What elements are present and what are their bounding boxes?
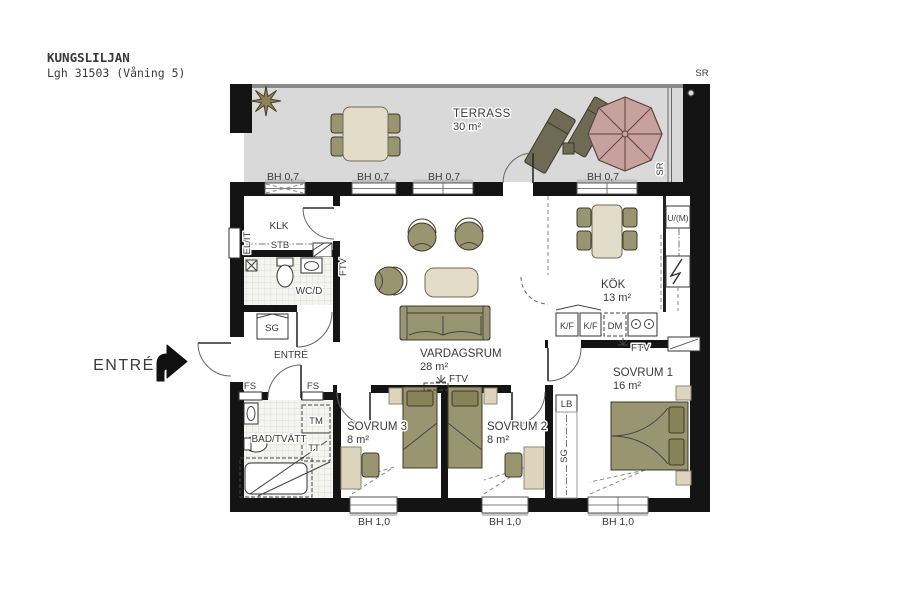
tv-outlet-label-living: FTV xyxy=(449,374,468,385)
tv-outlet-label-kitchen: FTV xyxy=(631,343,650,354)
nightstand xyxy=(676,386,691,400)
room-label-bedroom3: SOVRUM 3 xyxy=(347,421,407,433)
terrace-chair xyxy=(331,137,344,156)
living-furniture xyxy=(375,218,490,340)
entry-door xyxy=(198,343,231,376)
shelf-label: STB xyxy=(271,240,289,251)
kitchen-chair xyxy=(623,208,637,227)
entrance-arrow-icon xyxy=(157,345,187,381)
armchair xyxy=(455,218,483,250)
terrace-chair xyxy=(331,114,344,133)
terrace-name-label: TERRASS xyxy=(453,108,511,120)
sink-bath xyxy=(244,403,258,424)
vent-slot-label: FS xyxy=(307,381,319,392)
apartment-subtitle: Lgh 31503 (Våning 5) xyxy=(47,66,185,80)
wardrobe-label-shaft: SG xyxy=(559,449,570,463)
tumble-dryer-label: TT xyxy=(308,443,320,454)
entrance-marker: ENTRÉ xyxy=(93,345,187,381)
dishwasher-label: DM xyxy=(608,321,623,332)
room-area-bedroom2: 8 m² xyxy=(487,434,509,446)
tv-outlet-label-v: FTV xyxy=(338,257,349,276)
nightstand xyxy=(484,388,497,404)
terrace-chair xyxy=(387,137,400,156)
vent-box xyxy=(668,337,700,351)
kitchen-chair xyxy=(577,208,591,227)
toilet-wc xyxy=(277,258,293,287)
downpipe-label-side: SR xyxy=(655,162,666,175)
bed-single xyxy=(403,387,437,468)
kitchen-opening-arc xyxy=(521,277,548,304)
room-area-bedroom3: 8 m² xyxy=(347,434,369,446)
sink-wc xyxy=(301,258,322,273)
fridge-freezer-label: K/F xyxy=(560,321,575,331)
entrance-label: ENTRÉ xyxy=(93,355,155,374)
room-area-bedroom1: 16 m² xyxy=(613,380,641,392)
room-label-bedroom1: SOVRUM 1 xyxy=(613,367,673,379)
armchair xyxy=(408,219,436,251)
washing-machine-label: TM xyxy=(309,416,323,427)
nightstand xyxy=(389,388,402,404)
sill-label-upper: BH 0,7 xyxy=(428,171,460,183)
oven-microwave-label: U/(M) xyxy=(667,213,688,223)
terrace-wall-left xyxy=(230,84,252,133)
bed-double xyxy=(611,402,688,470)
wc-door xyxy=(297,312,332,347)
desk xyxy=(341,447,361,489)
desk-chair xyxy=(362,453,379,477)
sill-label-upper: BH 0,7 xyxy=(267,171,299,183)
sofa xyxy=(400,306,490,340)
room-label-hall: ENTRÉ xyxy=(274,348,308,361)
parasol-icon xyxy=(588,97,662,171)
room-area-kitchen: 13 m² xyxy=(603,292,631,304)
klk-door xyxy=(303,208,334,239)
vent-slot-label: FS xyxy=(244,381,256,392)
kitchen-table xyxy=(592,205,622,258)
room-label-living: VARDAGSRUM xyxy=(420,348,502,360)
terrace: TERRASS 30 m² SR SR xyxy=(230,68,710,196)
room-label-wc: WC/D xyxy=(296,286,323,297)
terrace-chair xyxy=(387,114,400,133)
project-title: KUNGSLILJAN xyxy=(47,50,130,65)
room-area-living: 28 m² xyxy=(420,361,448,373)
linen-cabinet-label: LB xyxy=(561,399,573,410)
room-label-klk: KLK xyxy=(270,221,289,232)
room-label-bath: BAD/TVÄTT xyxy=(251,433,306,445)
electrical-panel-icon xyxy=(666,256,690,287)
electrical-niche xyxy=(229,228,240,258)
desk-chair xyxy=(505,453,522,477)
wardrobe-label-hall: SG xyxy=(265,323,279,334)
vent-slot-box xyxy=(302,392,323,400)
terrace-wall-right xyxy=(683,84,710,196)
sill-label-upper: BH 0,7 xyxy=(587,171,619,183)
coffee-table xyxy=(425,268,478,297)
sill-label-lower: BH 1,0 xyxy=(602,516,634,528)
kitchen-dining-set xyxy=(577,205,637,258)
shaft-hatch-box xyxy=(313,243,332,257)
sill-label-lower: BH 1,0 xyxy=(358,516,390,528)
kitchen-chair xyxy=(577,231,591,250)
armchair xyxy=(375,267,407,295)
terrace-table xyxy=(343,107,388,161)
kitchen-chair xyxy=(623,231,637,250)
sill-label-upper: BH 0,7 xyxy=(357,171,389,183)
bedroom1-furniture xyxy=(556,386,691,498)
nightstand xyxy=(676,471,691,485)
vent-slot-box xyxy=(239,392,262,400)
downpipe-label-top: SR xyxy=(695,68,708,79)
room-label-bedroom2: SOVRUM 2 xyxy=(487,421,547,433)
lower-windows xyxy=(350,467,648,516)
bed-single xyxy=(448,387,482,468)
floor-plan-page: KUNGSLILJAN Lgh 31503 (Våning 5) xyxy=(0,0,900,600)
fridge-freezer-label: K/F xyxy=(583,321,598,331)
desk xyxy=(524,447,544,489)
terrace-railing xyxy=(230,84,710,88)
kitchen-sink-unit xyxy=(628,313,657,336)
bedroom1-door xyxy=(548,348,581,381)
north-compass-icon xyxy=(251,86,281,116)
lounger-side-table xyxy=(563,143,574,154)
room-label-kitchen: KÖK xyxy=(601,279,626,291)
floor-plan-svg: KUNGSLILJAN Lgh 31503 (Våning 5) xyxy=(0,0,900,600)
terrace-area-label: 30 m² xyxy=(453,121,481,133)
downpipe-marker xyxy=(688,90,694,96)
electrical-it-label: EL/IT xyxy=(242,231,253,254)
sill-label-lower: BH 1,0 xyxy=(489,516,521,528)
